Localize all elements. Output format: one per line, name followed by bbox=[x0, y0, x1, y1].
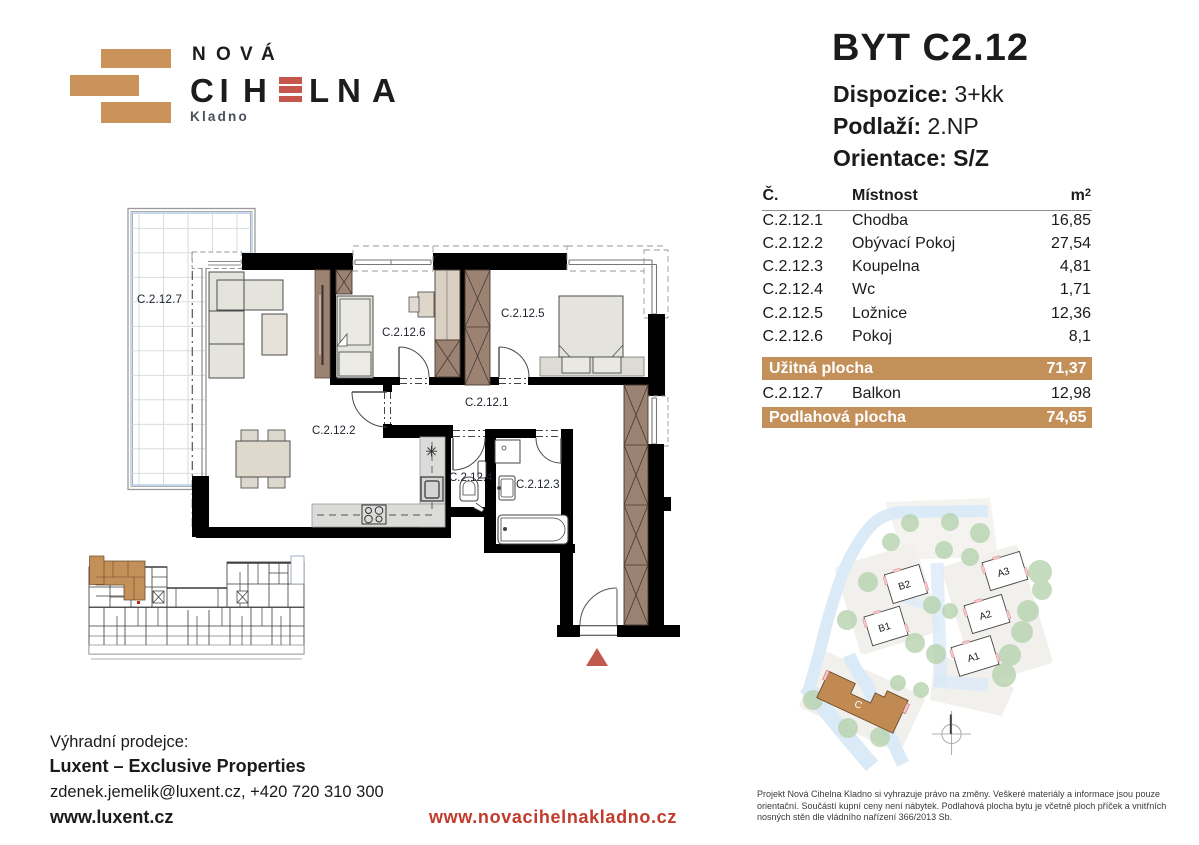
svg-text:C.2.12.7: C.2.12.7 bbox=[137, 294, 182, 306]
svg-text:C.2.12.1: C.2.12.1 bbox=[465, 397, 508, 409]
svg-text:C.2.12.2: C.2.12.2 bbox=[312, 425, 355, 437]
svg-text:C.2.12.5: C.2.12.5 bbox=[501, 308, 544, 320]
svg-text:C.2.12.6: C.2.12.6 bbox=[382, 327, 425, 339]
svg-text:C.2.12.4: C.2.12.4 bbox=[449, 472, 493, 484]
svg-text:C.2.12.3: C.2.12.3 bbox=[516, 479, 559, 491]
